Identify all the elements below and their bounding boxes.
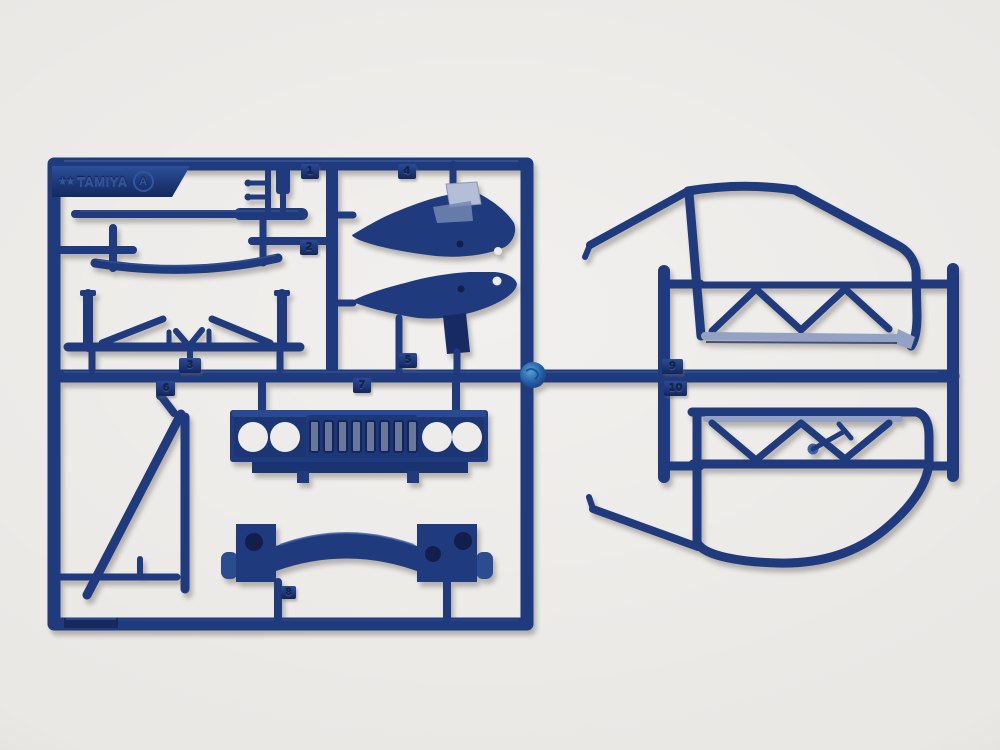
part-tag-5: 5 — [399, 353, 417, 368]
part-tag-4: 4 — [398, 164, 416, 179]
part-tag-2: 2 — [300, 240, 318, 255]
part-8-bumper-bracket — [221, 524, 493, 624]
tamiya-star-icon: ★★ — [58, 176, 74, 187]
part-tag-10: 10 — [664, 381, 687, 396]
logo-plate: ★★ TAMIYA A — [52, 166, 190, 197]
part-tag-9: 9 — [662, 359, 683, 374]
part-tag-1: 1 — [301, 164, 319, 179]
sprue-photo: ★★ TAMIYA A 1 2 3 4 5 6 7 8 9 10 — [0, 0, 1000, 750]
part-5-mudguard — [332, 272, 517, 376]
sprue-svg — [0, 0, 1000, 750]
part-tag-8: 8 — [281, 586, 296, 599]
part-10-roll-cage-side-lower — [589, 412, 929, 563]
gate-blob — [520, 362, 546, 388]
part-2-curved-bar — [95, 255, 278, 269]
bottom-rail-emboss-plate — [64, 618, 118, 628]
sprue-letter-badge: A — [133, 171, 154, 192]
part-tag-7: 7 — [353, 378, 371, 393]
brand-text: TAMIYA — [77, 174, 128, 189]
part-4-mudguard — [332, 164, 515, 257]
part-tag-3: 3 — [179, 358, 201, 373]
part-tag-6: 6 — [157, 381, 175, 396]
part-6-triangle-support — [54, 380, 185, 595]
part-9-roll-cage-side-upper — [585, 186, 917, 349]
